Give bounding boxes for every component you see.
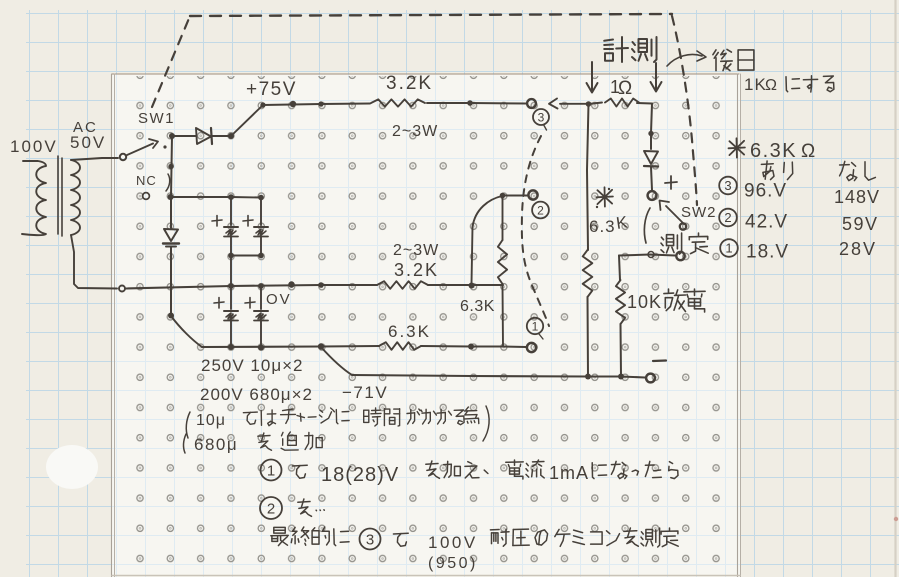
svg-text:200V 680μ×2: 200V 680μ×2 (200, 385, 313, 404)
svg-text:59V: 59V (842, 214, 879, 234)
svg-text:+75V: +75V (246, 79, 297, 100)
svg-text:(950): (950) (428, 555, 478, 572)
svg-text:OV: OV (266, 291, 292, 308)
svg-text:2: 2 (267, 500, 275, 517)
svg-text:6.3: 6.3 (589, 217, 616, 236)
svg-text:6.3K: 6.3K (388, 322, 431, 341)
svg-text:2~3W: 2~3W (393, 242, 439, 259)
svg-text:10K: 10K (627, 292, 662, 312)
svg-text:3.2K: 3.2K (394, 260, 439, 280)
svg-text:680μ: 680μ (194, 435, 238, 454)
svg-text:96.V: 96.V (744, 181, 787, 202)
svg-text:2: 2 (537, 203, 544, 217)
svg-text:1: 1 (532, 319, 539, 333)
svg-text:42.V: 42.V (745, 212, 788, 233)
svg-text:1mA: 1mA (549, 463, 589, 483)
svg-text:3: 3 (724, 178, 731, 193)
svg-text:148V: 148V (834, 187, 880, 207)
svg-text:SW2: SW2 (681, 204, 717, 221)
svg-text:18(28)V: 18(28)V (321, 464, 399, 486)
svg-text:3: 3 (366, 531, 374, 548)
svg-text:10μ: 10μ (196, 412, 226, 429)
svg-text:Ω: Ω (765, 77, 778, 94)
svg-text:2~3W: 2~3W (392, 123, 438, 140)
svg-text:28V: 28V (839, 239, 877, 259)
svg-text:18.V: 18.V (746, 242, 789, 263)
svg-text:3.2K: 3.2K (386, 73, 433, 94)
svg-text:NC: NC (136, 173, 157, 188)
svg-text:100V: 100V (428, 533, 478, 552)
svg-text:6.3K: 6.3K (460, 298, 495, 315)
svg-text:1: 1 (267, 462, 275, 479)
svg-text:SW1: SW1 (138, 110, 175, 127)
svg-text:Ω: Ω (618, 78, 633, 99)
svg-text:6.3K: 6.3K (750, 140, 797, 162)
svg-text:−71V: −71V (342, 383, 388, 402)
svg-text:K: K (615, 212, 630, 233)
svg-text:1: 1 (725, 241, 732, 256)
svg-text:3: 3 (538, 110, 545, 124)
svg-text:Ω: Ω (801, 141, 816, 162)
svg-text:50V: 50V (70, 133, 106, 152)
svg-text:250V 10μ×2: 250V 10μ×2 (201, 356, 304, 375)
svg-text:1K: 1K (744, 75, 767, 94)
svg-text:100V: 100V (10, 137, 58, 156)
svg-text:2: 2 (724, 210, 731, 225)
